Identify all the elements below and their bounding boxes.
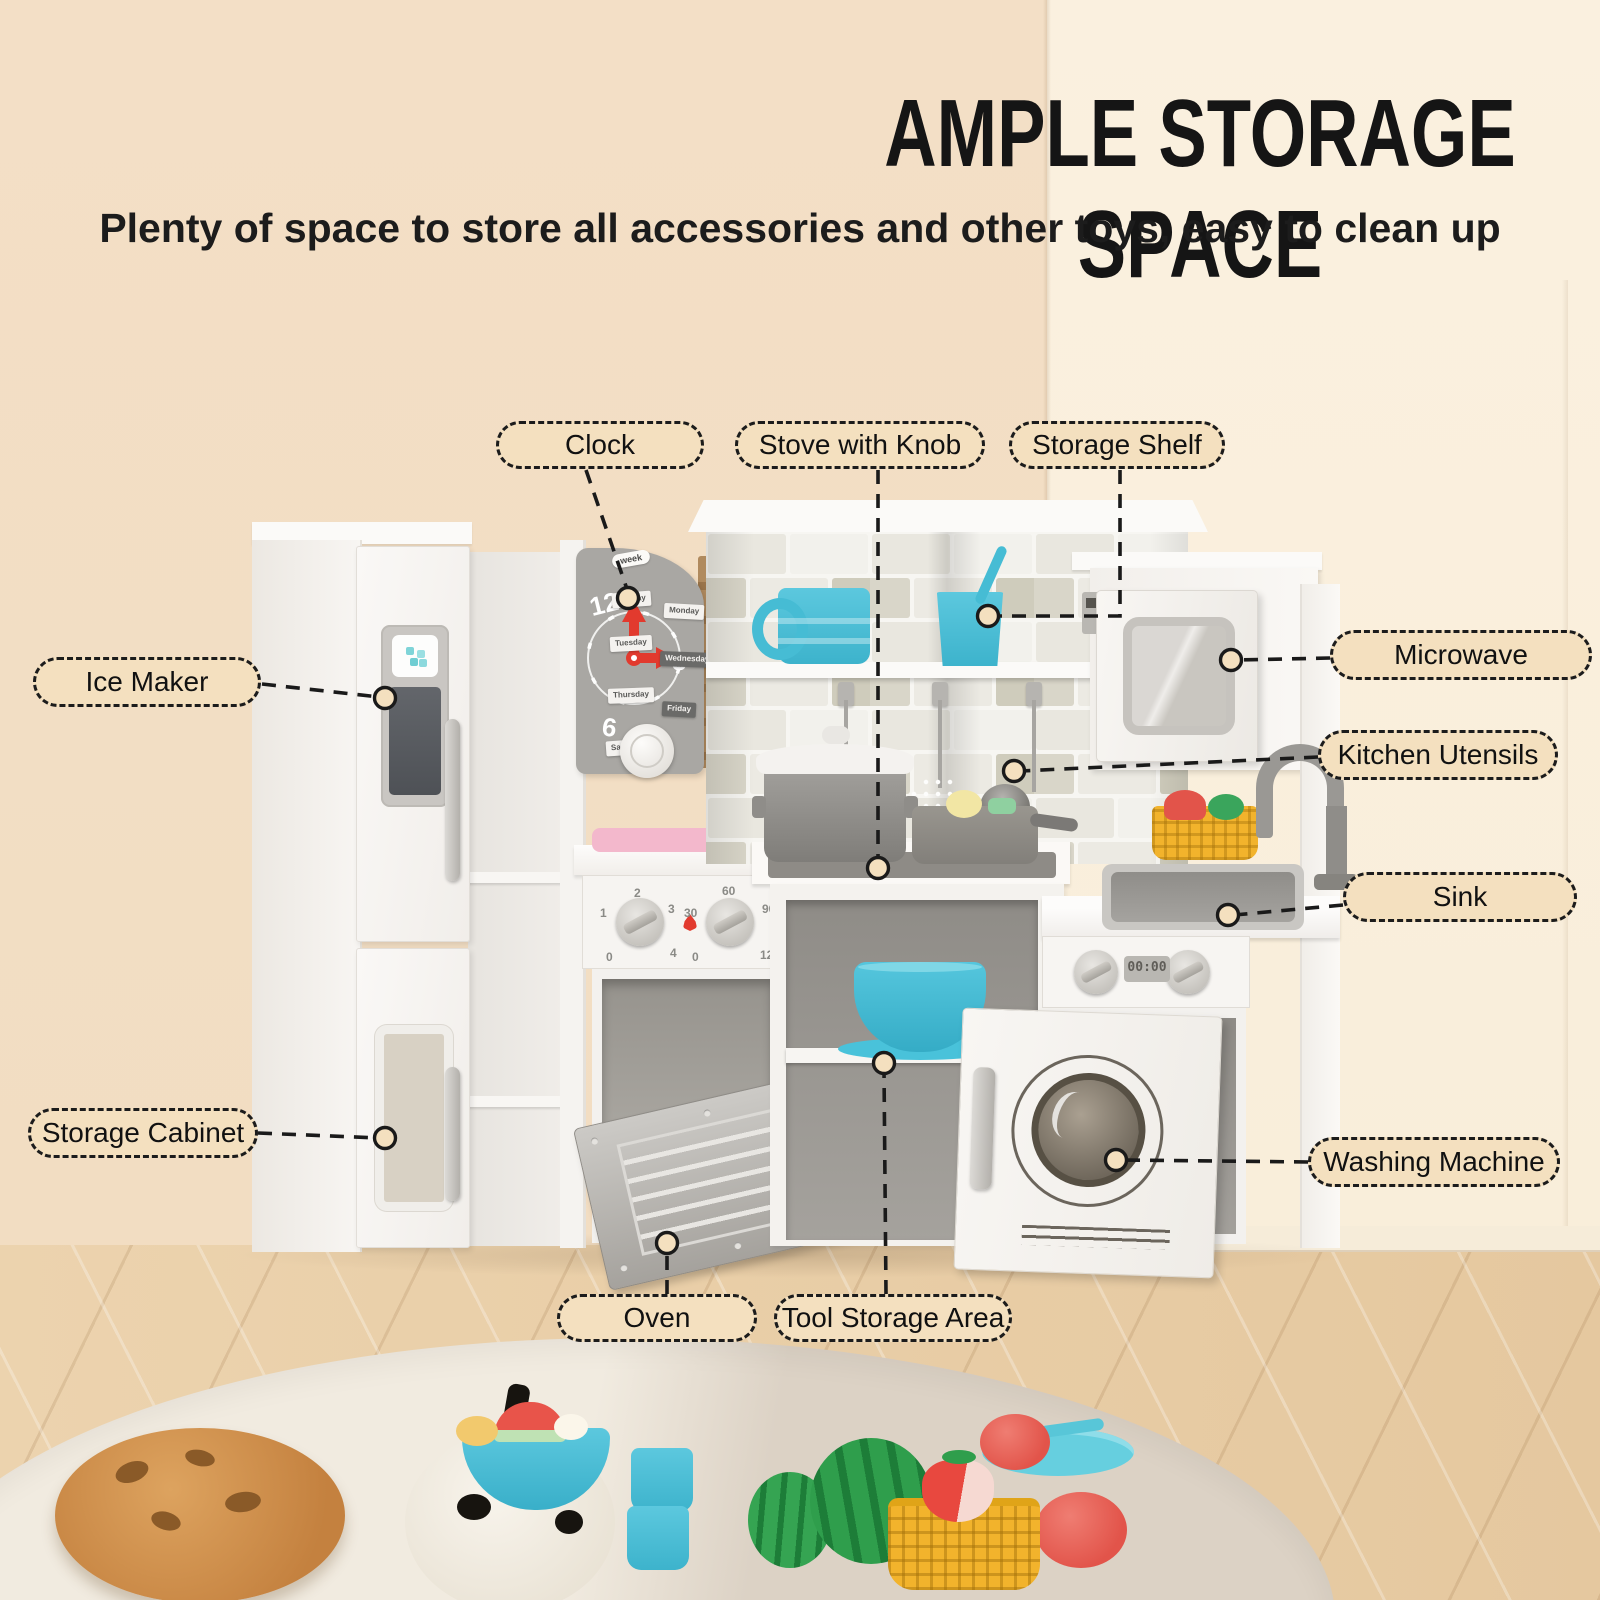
callout-microwave: Microwave [1330, 630, 1592, 680]
utensil-wire [1032, 700, 1036, 792]
callout-label: Washing Machine [1323, 1146, 1545, 1178]
callout-clock: Clock [496, 421, 704, 469]
knob-scale-left-2: 2 [634, 886, 641, 900]
callout-label: Clock [565, 429, 635, 461]
callout-stove-with-knob: Stove with Knob [735, 421, 985, 469]
faucet-spout [1256, 810, 1273, 838]
interior-shelf [468, 872, 572, 883]
sink-basin [1102, 864, 1304, 930]
product-infographic: AMPLE STORAGE SPACE Plenty of space to s… [0, 0, 1600, 1600]
ice-maker-panel [381, 625, 449, 807]
microwave-door [1096, 590, 1258, 762]
knob-scale-right-0: 0 [692, 950, 699, 964]
oven-knob-left [616, 898, 664, 946]
callout-sink: Sink [1343, 872, 1577, 922]
strawberry-leaf [942, 1450, 976, 1464]
toy-pepper-in-basket [1208, 794, 1244, 820]
utensil-wire [938, 700, 942, 788]
pumpkin-spot [457, 1494, 491, 1520]
knob-scale-left-1: 1 [600, 906, 607, 920]
callout-label: Ice Maker [86, 666, 209, 698]
toy-cup [627, 1506, 689, 1570]
fridge-interior [468, 552, 572, 1246]
page-subtitle: Plenty of space to store all accessories… [0, 205, 1600, 252]
clock-day-tuesday: Tuesday [610, 635, 653, 652]
clock-day-thursday: Thursday [608, 687, 655, 704]
toy-tumbler [934, 592, 1006, 666]
cabinet-handle [445, 1067, 460, 1201]
toy-pot [764, 764, 906, 862]
washer-display-time: 00:00 [1124, 960, 1170, 975]
knob-scale-right-30: 30 [684, 906, 697, 920]
microwave-window [1123, 617, 1235, 735]
washing-machine-door [954, 1008, 1223, 1279]
callout-ice-maker: Ice Maker [33, 657, 261, 707]
cookie-plush [55, 1428, 345, 1600]
washer-knob-left [1074, 950, 1118, 994]
wall-corner-right [1562, 280, 1568, 1250]
callout-label: Storage Shelf [1032, 429, 1202, 461]
knob-scale-left-4: 4 [670, 946, 677, 960]
callout-tool-storage-area: Tool Storage Area [774, 1294, 1012, 1342]
toy-egg [554, 1414, 588, 1440]
callout-washing-machine: Washing Machine [1308, 1137, 1560, 1187]
washer-vent [1021, 1225, 1170, 1250]
knob-scale-right-60: 60 [722, 884, 735, 898]
oven-knob-right [706, 898, 754, 946]
cabinet-window [375, 1025, 453, 1211]
svg-text:6: 6 [600, 711, 619, 743]
clock-day-sunday: Sunday [612, 591, 652, 609]
washer-display: 00:00 [1124, 956, 1170, 982]
fridge-handle [445, 719, 460, 881]
ice-dispenser-window [389, 687, 441, 795]
ice-icon [392, 635, 438, 677]
toy-tomato [1035, 1492, 1127, 1568]
toy-cutting-board [592, 828, 720, 852]
callout-label: Oven [624, 1302, 691, 1334]
callout-oven: Oven [557, 1294, 757, 1342]
knob-scale-left-3: 3 [668, 902, 675, 916]
callout-kitchen-utensils: Kitchen Utensils [1318, 730, 1558, 780]
callout-label: Kitchen Utensils [1338, 739, 1539, 771]
toy-cup-stack [625, 1448, 697, 1566]
toy-tomato-in-basket [1164, 790, 1206, 820]
callout-storage-cabinet: Storage Cabinet [28, 1108, 258, 1158]
corner-header-board [688, 500, 1208, 532]
callout-label: Sink [1433, 881, 1487, 913]
callout-label: Microwave [1394, 639, 1528, 671]
toy-mug [778, 588, 870, 664]
toy-tomato-half [980, 1414, 1050, 1470]
toy-egg-in-pan [946, 790, 982, 818]
toy-cup [631, 1448, 693, 1512]
interior-shelf [468, 1096, 572, 1107]
clock-dial-knob [620, 724, 674, 778]
fridge-side-panel [252, 540, 362, 1252]
toy-fruit [456, 1416, 498, 1446]
callout-label: Stove with Knob [759, 429, 961, 461]
callout-label: Tool Storage Area [782, 1302, 1005, 1334]
callout-storage-shelf: Storage Shelf [1009, 421, 1225, 469]
faucet-column [1326, 806, 1347, 882]
fridge-door [356, 546, 470, 942]
callout-label: Storage Cabinet [42, 1117, 244, 1149]
clock-day-monday: Monday [664, 603, 705, 620]
ice-cubes-icon [406, 647, 414, 655]
washer-door-handle [969, 1067, 995, 1190]
clock-day-friday: Friday [662, 701, 697, 718]
knob-scale-left-0: 0 [606, 950, 613, 964]
pumpkin-spot [555, 1510, 583, 1534]
pot-lid-knob [822, 726, 850, 744]
toy-pot-lid [756, 744, 914, 774]
toy-vegetable [988, 798, 1016, 814]
washer-knob-right [1166, 950, 1210, 994]
toy-strawberry [922, 1460, 994, 1522]
storage-cabinet-door [356, 948, 470, 1248]
